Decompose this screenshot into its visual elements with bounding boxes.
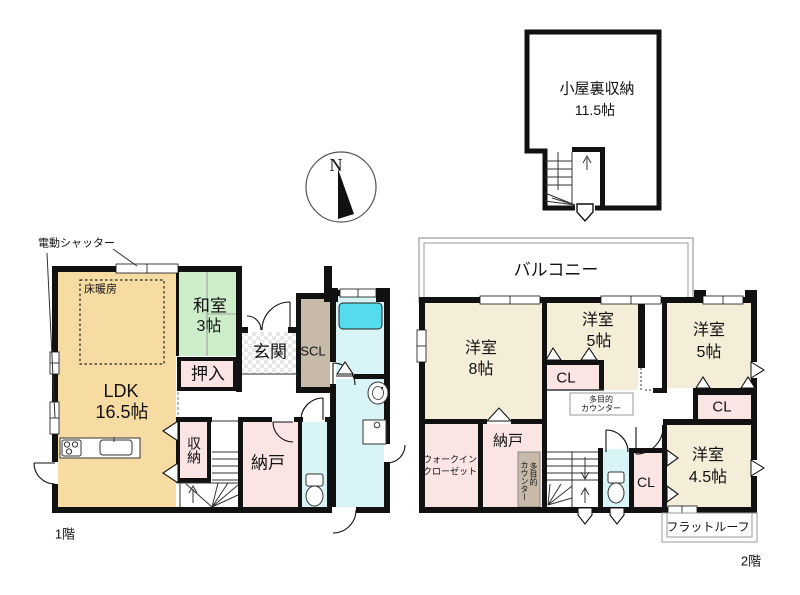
room8-size: 8帖 (469, 362, 494, 378)
kitchen-counter (60, 437, 140, 458)
cl-center-label: CL (556, 371, 575, 386)
toilet-2f-icon (608, 472, 624, 503)
floor2-caption: 2階 (741, 555, 761, 568)
attic-name: 小屋裏収納 (559, 82, 634, 97)
wic-line1: ウォークイン (423, 456, 477, 465)
cl-right-label: CL (712, 400, 731, 415)
room5-center-name: 洋室 (582, 313, 614, 329)
floor2-fixtures (608, 472, 624, 503)
room5-right-name: 洋室 (693, 323, 725, 339)
scl-label: SCL (300, 345, 325, 358)
room8-name: 洋室 (465, 341, 497, 357)
sink-icon (100, 440, 132, 455)
shutter-note: 電動シャッター (38, 239, 115, 250)
bathtub-icon (339, 303, 382, 329)
attic-plan (527, 32, 659, 221)
balcony-label: バルコニー (514, 262, 599, 279)
room-2f-wic (424, 424, 478, 507)
cl-small-label: CL (637, 475, 655, 489)
genkan-label: 玄関 (253, 344, 287, 361)
washbasin-icon (368, 382, 388, 404)
ldk-size: 16.5帖 (95, 403, 148, 421)
nando-2f-label: 納戸 (493, 434, 523, 449)
room-2f-yoshitsu45 (667, 425, 751, 507)
washitsu-size: 3帖 (197, 319, 222, 335)
toilet-1f-icon (306, 474, 323, 506)
flat-roof-label: フラットルーフ (666, 521, 749, 533)
floor-plan-page: N 電動シャッター 小屋裏収納 11.5帖 床暖房 和室 3帖 押入 玄関 SC… (0, 0, 800, 595)
ldk-name: LDK (103, 382, 138, 400)
floor-heating-label: 床暖房 (84, 285, 117, 296)
washer-icon (363, 420, 386, 444)
nando-1f-label: 納戸 (251, 455, 285, 472)
floor-plan-drawing (0, 0, 800, 595)
attic-size: 11.5帖 (575, 103, 615, 117)
counter-strip-line2: カウンター (520, 461, 528, 501)
room45-size: 4.5帖 (689, 470, 727, 486)
room5-right-size: 5帖 (697, 345, 722, 361)
washitsu-name: 和室 (193, 298, 227, 315)
oshiire-label: 押入 (191, 366, 225, 383)
compass-north-label: N (330, 156, 343, 174)
storage-label: 収納 (187, 436, 201, 464)
room5-center-size: 5帖 (587, 334, 612, 350)
room45-name: 洋室 (692, 448, 724, 464)
wic-line2: クローゼット (423, 468, 477, 477)
counter-box-line1: 多目的 (589, 396, 613, 404)
floor1-caption: 1階 (55, 528, 75, 541)
counter-strip-line1: 多目的 (529, 462, 537, 486)
attic-entry-hatch (577, 204, 593, 221)
counter-box-line2: カウンター (581, 405, 621, 413)
